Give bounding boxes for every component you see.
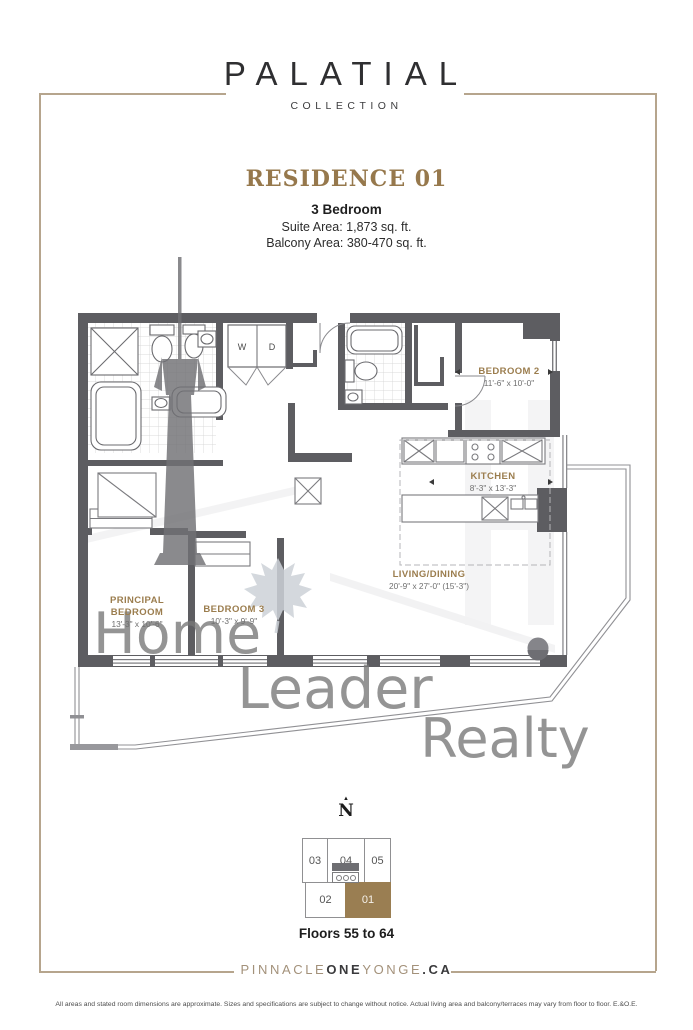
bathtub-icon	[347, 326, 402, 354]
stove-icon	[466, 440, 500, 464]
residence-title: RESIDENCE 01	[0, 166, 693, 192]
website-segment: .CA	[422, 962, 452, 977]
fridge-icon	[404, 440, 434, 462]
svg-text:10'-3" x 9'-9": 10'-3" x 9'-9"	[211, 616, 257, 626]
keyplan: 03 04 05 02 01	[302, 838, 391, 919]
bathtub-icon	[91, 382, 141, 450]
room-label-kitchen: KITCHEN	[470, 471, 515, 482]
frame-top-right-line	[464, 93, 655, 95]
watermark-text: Home Leader Realty	[93, 601, 590, 770]
svg-text:Realty: Realty	[420, 707, 590, 770]
frame-top-left-line	[39, 93, 226, 95]
room-label-living-dining: LIVING/DINING	[393, 569, 466, 580]
keyplan-unit-01: 01	[345, 882, 391, 918]
washer-dryer-closet: W D	[228, 325, 286, 385]
sink-icon	[198, 331, 216, 347]
brand-logo: PALATIAL	[0, 55, 693, 93]
dishwasher-icon	[482, 497, 508, 520]
keyplan-unit-02: 02	[305, 882, 346, 918]
suite-area: Suite Area: 1,873 sq. ft.	[0, 220, 693, 234]
brand-collection: COLLECTION	[0, 100, 693, 112]
floorplan-svg: W D	[50, 255, 650, 770]
keyplan-unit-05: 05	[364, 838, 391, 883]
toilet-icon	[345, 360, 377, 382]
linen-closet	[295, 478, 321, 504]
room-label-bedroom3: BEDROOM 3	[203, 604, 264, 615]
disclaimer-text: All areas and stated room dimensions are…	[0, 1001, 693, 1008]
sink-icon	[152, 397, 170, 410]
sink-icon	[345, 390, 362, 404]
keyplan-elevators	[332, 872, 359, 883]
svg-text:13'-3" x 10'-6": 13'-3" x 10'-6"	[111, 619, 162, 629]
keyplan-unit-03: 03	[302, 838, 328, 883]
dryer-label: D	[269, 342, 276, 352]
website-url: PINNACLEONEYONGE.CA	[0, 962, 693, 977]
website-segment: PINNACLE	[241, 962, 327, 977]
toilet-icon	[150, 325, 174, 362]
svg-text:11'-6" x 10'-0": 11'-6" x 10'-0"	[484, 378, 534, 388]
column	[528, 638, 549, 661]
room-label-principal-bedroom: PRINCIPAL	[110, 595, 164, 606]
keyplan-core	[332, 863, 359, 871]
floorplan-page: PALATIAL COLLECTION RESIDENCE 01 3 Bedro…	[0, 0, 693, 1030]
north-indicator: ▲ N	[331, 796, 361, 820]
shower-icon	[91, 328, 138, 375]
balcony-area: Balcony Area: 380-470 sq. ft.	[0, 236, 693, 250]
residence-type: 3 Bedroom	[0, 202, 693, 217]
svg-text:Leader: Leader	[237, 656, 433, 722]
bedroom-closets	[90, 473, 321, 566]
website-segment: YONGE	[362, 962, 422, 977]
svg-text:BEDROOM: BEDROOM	[111, 607, 163, 618]
svg-text:20'-9" x 27'-0" (15'-3"): 20'-9" x 27'-0" (15'-3")	[389, 581, 469, 591]
room-label-bedroom2: BEDROOM 2	[478, 366, 539, 377]
svg-text:8'-3" x 13'-3": 8'-3" x 13'-3"	[470, 483, 516, 493]
washer-label: W	[238, 342, 247, 352]
north-letter: N	[338, 801, 354, 821]
website-segment: ONE	[326, 962, 362, 977]
cabinet-icon	[502, 440, 542, 462]
floors-label: Floors 55 to 64	[0, 926, 693, 941]
